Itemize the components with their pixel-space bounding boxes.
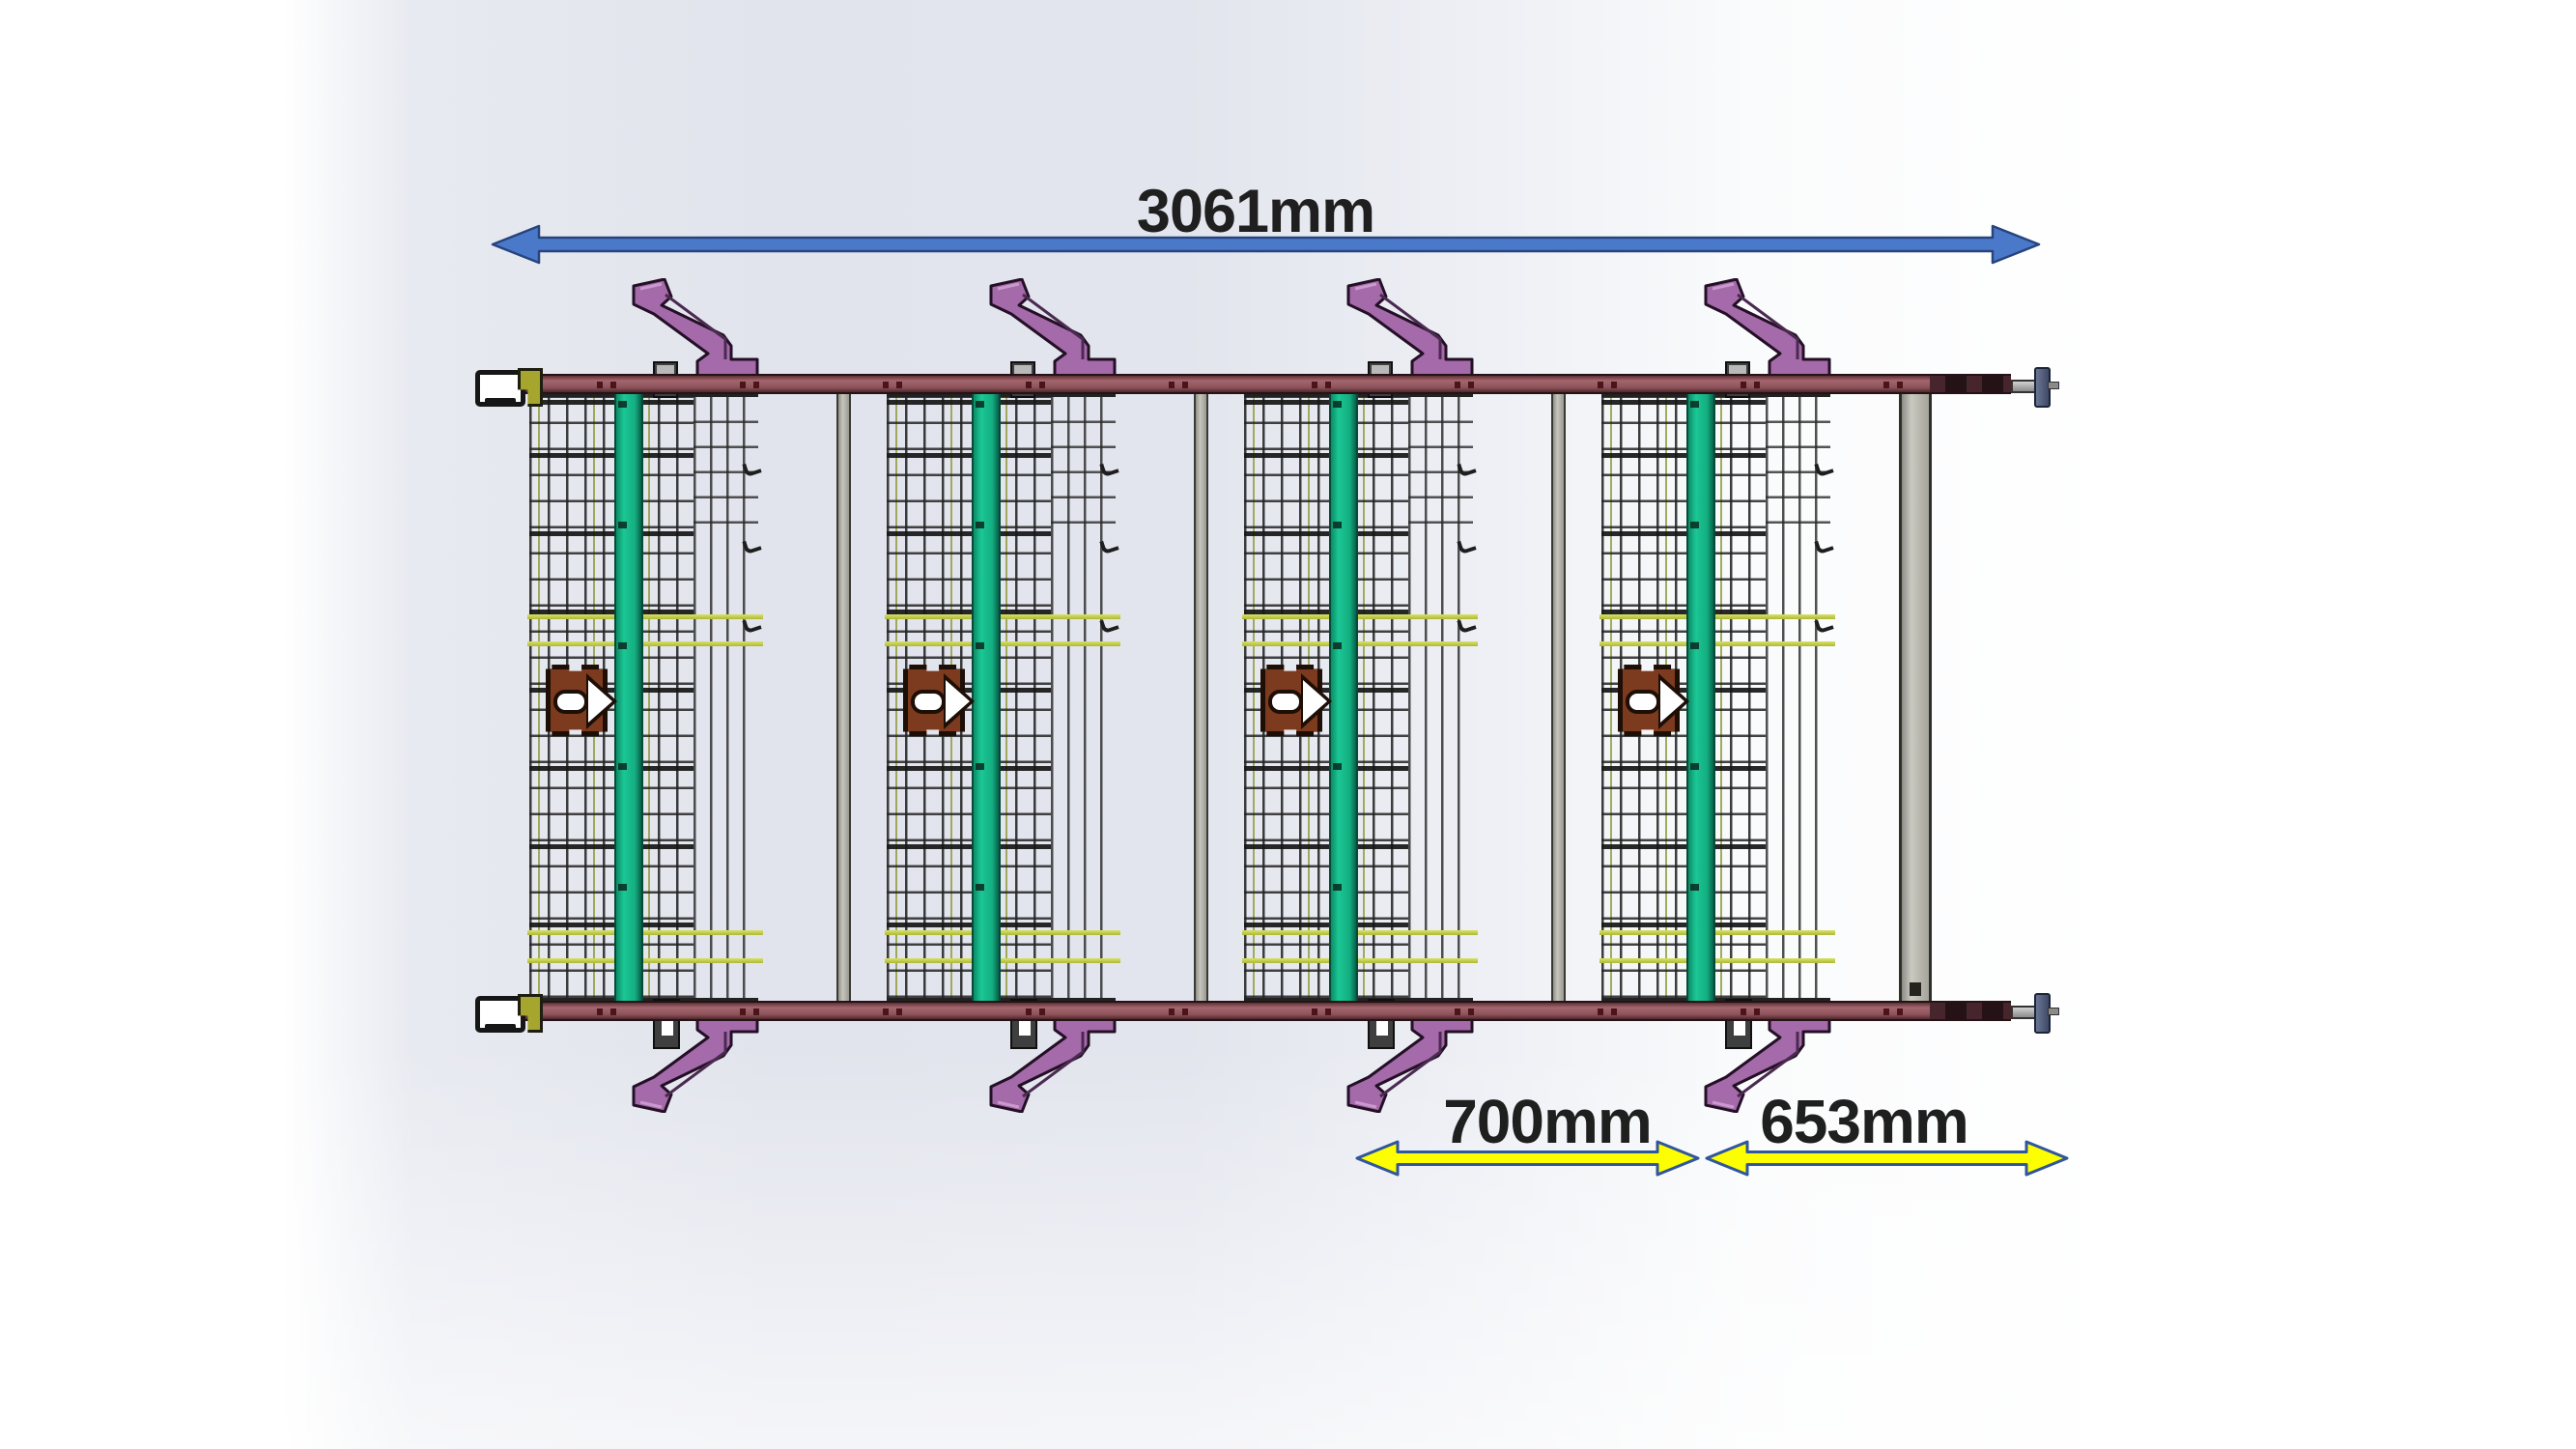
top-rail-end-segment bbox=[1930, 376, 2011, 392]
bolt-pin bbox=[2048, 382, 2059, 389]
module-pitch-arrow bbox=[1355, 1137, 1700, 1179]
crossbar bbox=[1242, 958, 1478, 963]
bracket-pointer bbox=[1303, 680, 1327, 723]
mesh-panel-crosswires bbox=[1408, 398, 1473, 524]
crossbar bbox=[885, 641, 1120, 646]
crossbar bbox=[1599, 930, 1835, 935]
crossbar bbox=[1242, 930, 1478, 935]
clamp-handle-bottom-icon bbox=[1702, 1012, 1837, 1113]
belt-stripe bbox=[614, 386, 643, 1005]
clamp-handle-bottom-icon bbox=[630, 1012, 765, 1113]
clamp-handle-bottom-icon bbox=[1345, 1012, 1480, 1113]
crossbar bbox=[527, 958, 763, 963]
clamp-handle-top-icon bbox=[1702, 278, 1837, 379]
divider-bar bbox=[1194, 384, 1208, 1005]
belt-stripe bbox=[1686, 386, 1715, 1005]
bracket-pointer bbox=[588, 680, 612, 723]
end-post bbox=[1899, 384, 1932, 1005]
crossbar bbox=[1599, 958, 1835, 963]
crossbar bbox=[527, 930, 763, 935]
technical-drawing-canvas: 3061mm bbox=[0, 0, 2576, 1449]
clamp-handle-bottom-icon bbox=[987, 1012, 1122, 1113]
mesh-panel-crosswires bbox=[1766, 398, 1830, 524]
end-section-arrow bbox=[1705, 1137, 2069, 1179]
overall-width-arrow bbox=[491, 223, 2041, 266]
planter-module bbox=[1601, 278, 1843, 1113]
crossbar bbox=[1242, 641, 1478, 646]
planter-module bbox=[887, 278, 1128, 1113]
belt-stripe bbox=[1329, 386, 1358, 1005]
clamp-handle-top-icon bbox=[987, 278, 1122, 379]
bracket-slot bbox=[911, 690, 946, 714]
bracket-slot bbox=[1268, 690, 1303, 714]
end-fitting-tab bbox=[485, 1024, 516, 1033]
left-end-fitting-top bbox=[475, 366, 537, 407]
crossbar bbox=[527, 641, 763, 646]
left-end-fitting-bottom bbox=[475, 992, 537, 1033]
clamp-handle-top-icon bbox=[630, 278, 765, 379]
bracket-slot bbox=[1626, 690, 1660, 714]
bottom-rail-end-segment bbox=[1930, 1003, 2011, 1019]
right-end-bolt-bottom bbox=[2011, 992, 2057, 1033]
mesh-panel-crosswires bbox=[1051, 398, 1116, 524]
end-fitting-tab bbox=[485, 398, 516, 407]
crossbar bbox=[885, 614, 1120, 619]
mesh-panel-crosswires bbox=[694, 398, 758, 524]
divider-bar bbox=[1551, 384, 1566, 1005]
bracket-slot bbox=[553, 690, 588, 714]
planter-module bbox=[1244, 278, 1486, 1113]
crossbar bbox=[527, 614, 763, 619]
bolt-pin bbox=[2048, 1008, 2059, 1015]
belt-stripe bbox=[972, 386, 1001, 1005]
top-rail bbox=[522, 374, 2011, 394]
crossbar bbox=[885, 958, 1120, 963]
right-end-bolt-top bbox=[2011, 366, 2057, 407]
bottom-rail bbox=[522, 1001, 2011, 1021]
crossbar bbox=[1242, 614, 1478, 619]
crossbar bbox=[1599, 614, 1835, 619]
bracket-pointer bbox=[946, 680, 970, 723]
bracket-pointer bbox=[1660, 680, 1684, 723]
crossbar bbox=[1599, 641, 1835, 646]
divider-bar bbox=[836, 384, 851, 1005]
planter-module bbox=[529, 278, 771, 1113]
clamp-handle-top-icon bbox=[1345, 278, 1480, 379]
crossbar bbox=[885, 930, 1120, 935]
